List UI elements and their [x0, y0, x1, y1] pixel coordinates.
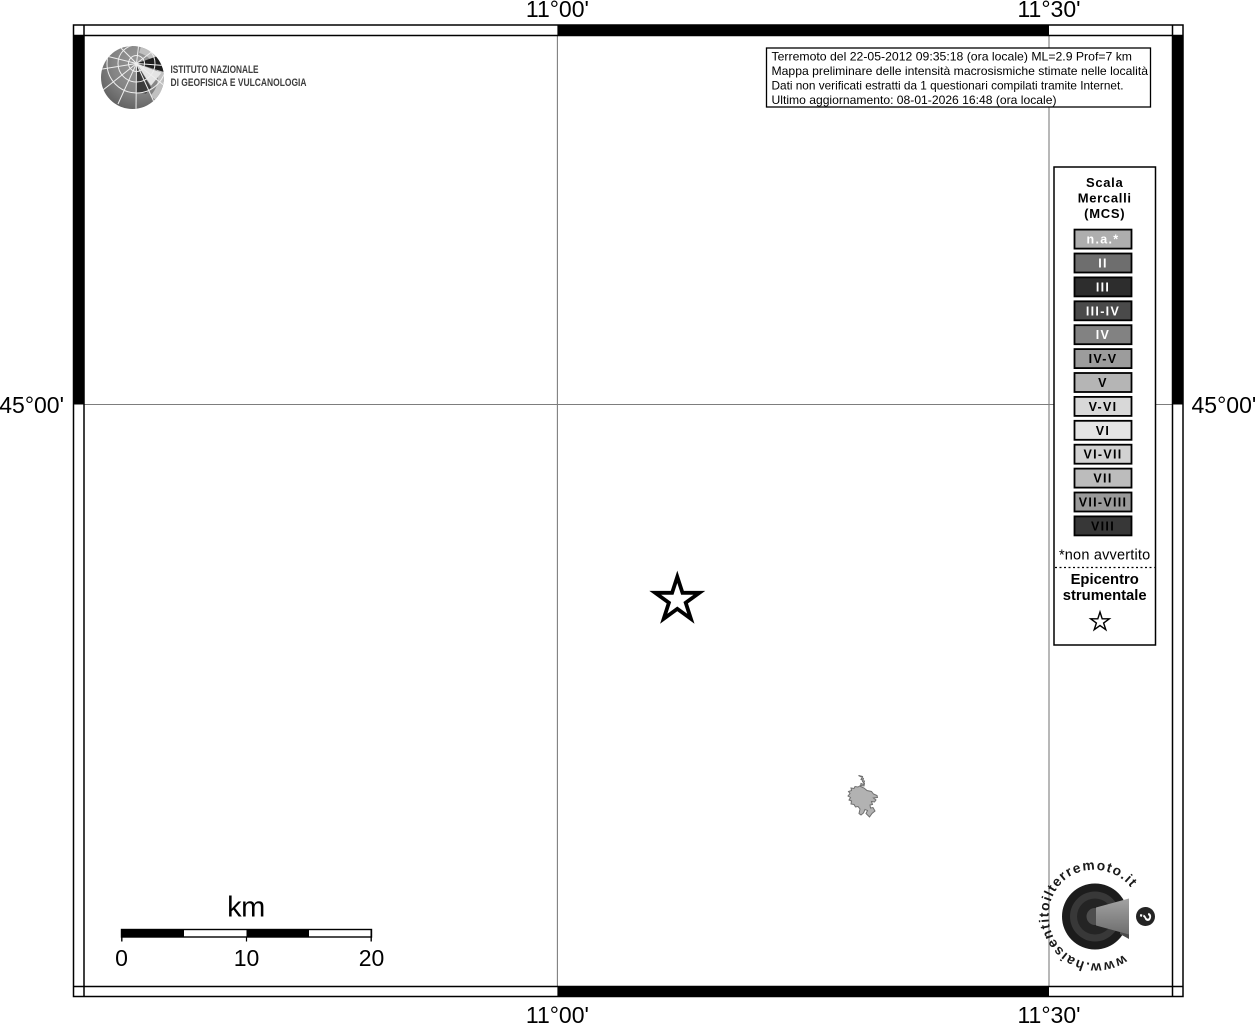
svg-text:VII-VIII: VII-VIII — [1079, 496, 1128, 510]
svg-text:20: 20 — [359, 945, 385, 971]
svg-text:Mappa preliminare delle intens: Mappa preliminare delle intensità macros… — [772, 64, 1149, 78]
svg-text:strumentale: strumentale — [1063, 588, 1147, 604]
svg-text:VII: VII — [1093, 472, 1112, 486]
svg-text:11°00': 11°00' — [526, 0, 589, 22]
svg-text:II: II — [1098, 257, 1108, 271]
svg-text:Ultimo aggiornamento: 08-01-20: Ultimo aggiornamento: 08-01-2026 16:48 (… — [772, 93, 1057, 107]
svg-text:V-VI: V-VI — [1089, 400, 1118, 414]
svg-text:ISTITUTO NAZIONALE: ISTITUTO NAZIONALE — [171, 64, 259, 76]
svg-text:V: V — [1098, 376, 1108, 390]
svg-text:VI-VII: VI-VII — [1083, 448, 1122, 462]
svg-text:DI GEOFISICA E VULCANOLOGIA: DI GEOFISICA E VULCANOLOGIA — [171, 77, 307, 89]
svg-text:11°30': 11°30' — [1017, 0, 1080, 22]
svg-text:III: III — [1096, 280, 1110, 294]
svg-text:45°00': 45°00' — [0, 392, 64, 418]
svg-text:IV-V: IV-V — [1089, 352, 1118, 366]
svg-text:0: 0 — [115, 945, 128, 971]
svg-text:45°00': 45°00' — [1192, 392, 1255, 418]
svg-text:Dati non verificati estratti d: Dati non verificati estratti da 1 questi… — [772, 79, 1124, 93]
svg-text:IV: IV — [1096, 328, 1110, 342]
svg-text:Terremoto del 22-05-2012 09:35: Terremoto del 22-05-2012 09:35:18 (ora l… — [772, 49, 1133, 63]
svg-text:Scala: Scala — [1086, 175, 1124, 190]
svg-text:km: km — [227, 891, 265, 923]
svg-text:n.a.*: n.a.* — [1087, 233, 1120, 247]
svg-text:11°30': 11°30' — [1017, 1002, 1080, 1024]
svg-text:Mercalli: Mercalli — [1078, 191, 1132, 206]
svg-text:Epicentro: Epicentro — [1071, 572, 1139, 588]
svg-text:*non avvertito: *non avvertito — [1059, 548, 1150, 564]
svg-text:VI: VI — [1096, 424, 1110, 438]
svg-text:(MCS): (MCS) — [1084, 206, 1125, 221]
svg-text:III-IV: III-IV — [1086, 304, 1120, 318]
svg-text:VIII: VIII — [1091, 519, 1115, 533]
svg-text:11°00': 11°00' — [526, 1002, 589, 1024]
svg-text:10: 10 — [234, 945, 260, 971]
